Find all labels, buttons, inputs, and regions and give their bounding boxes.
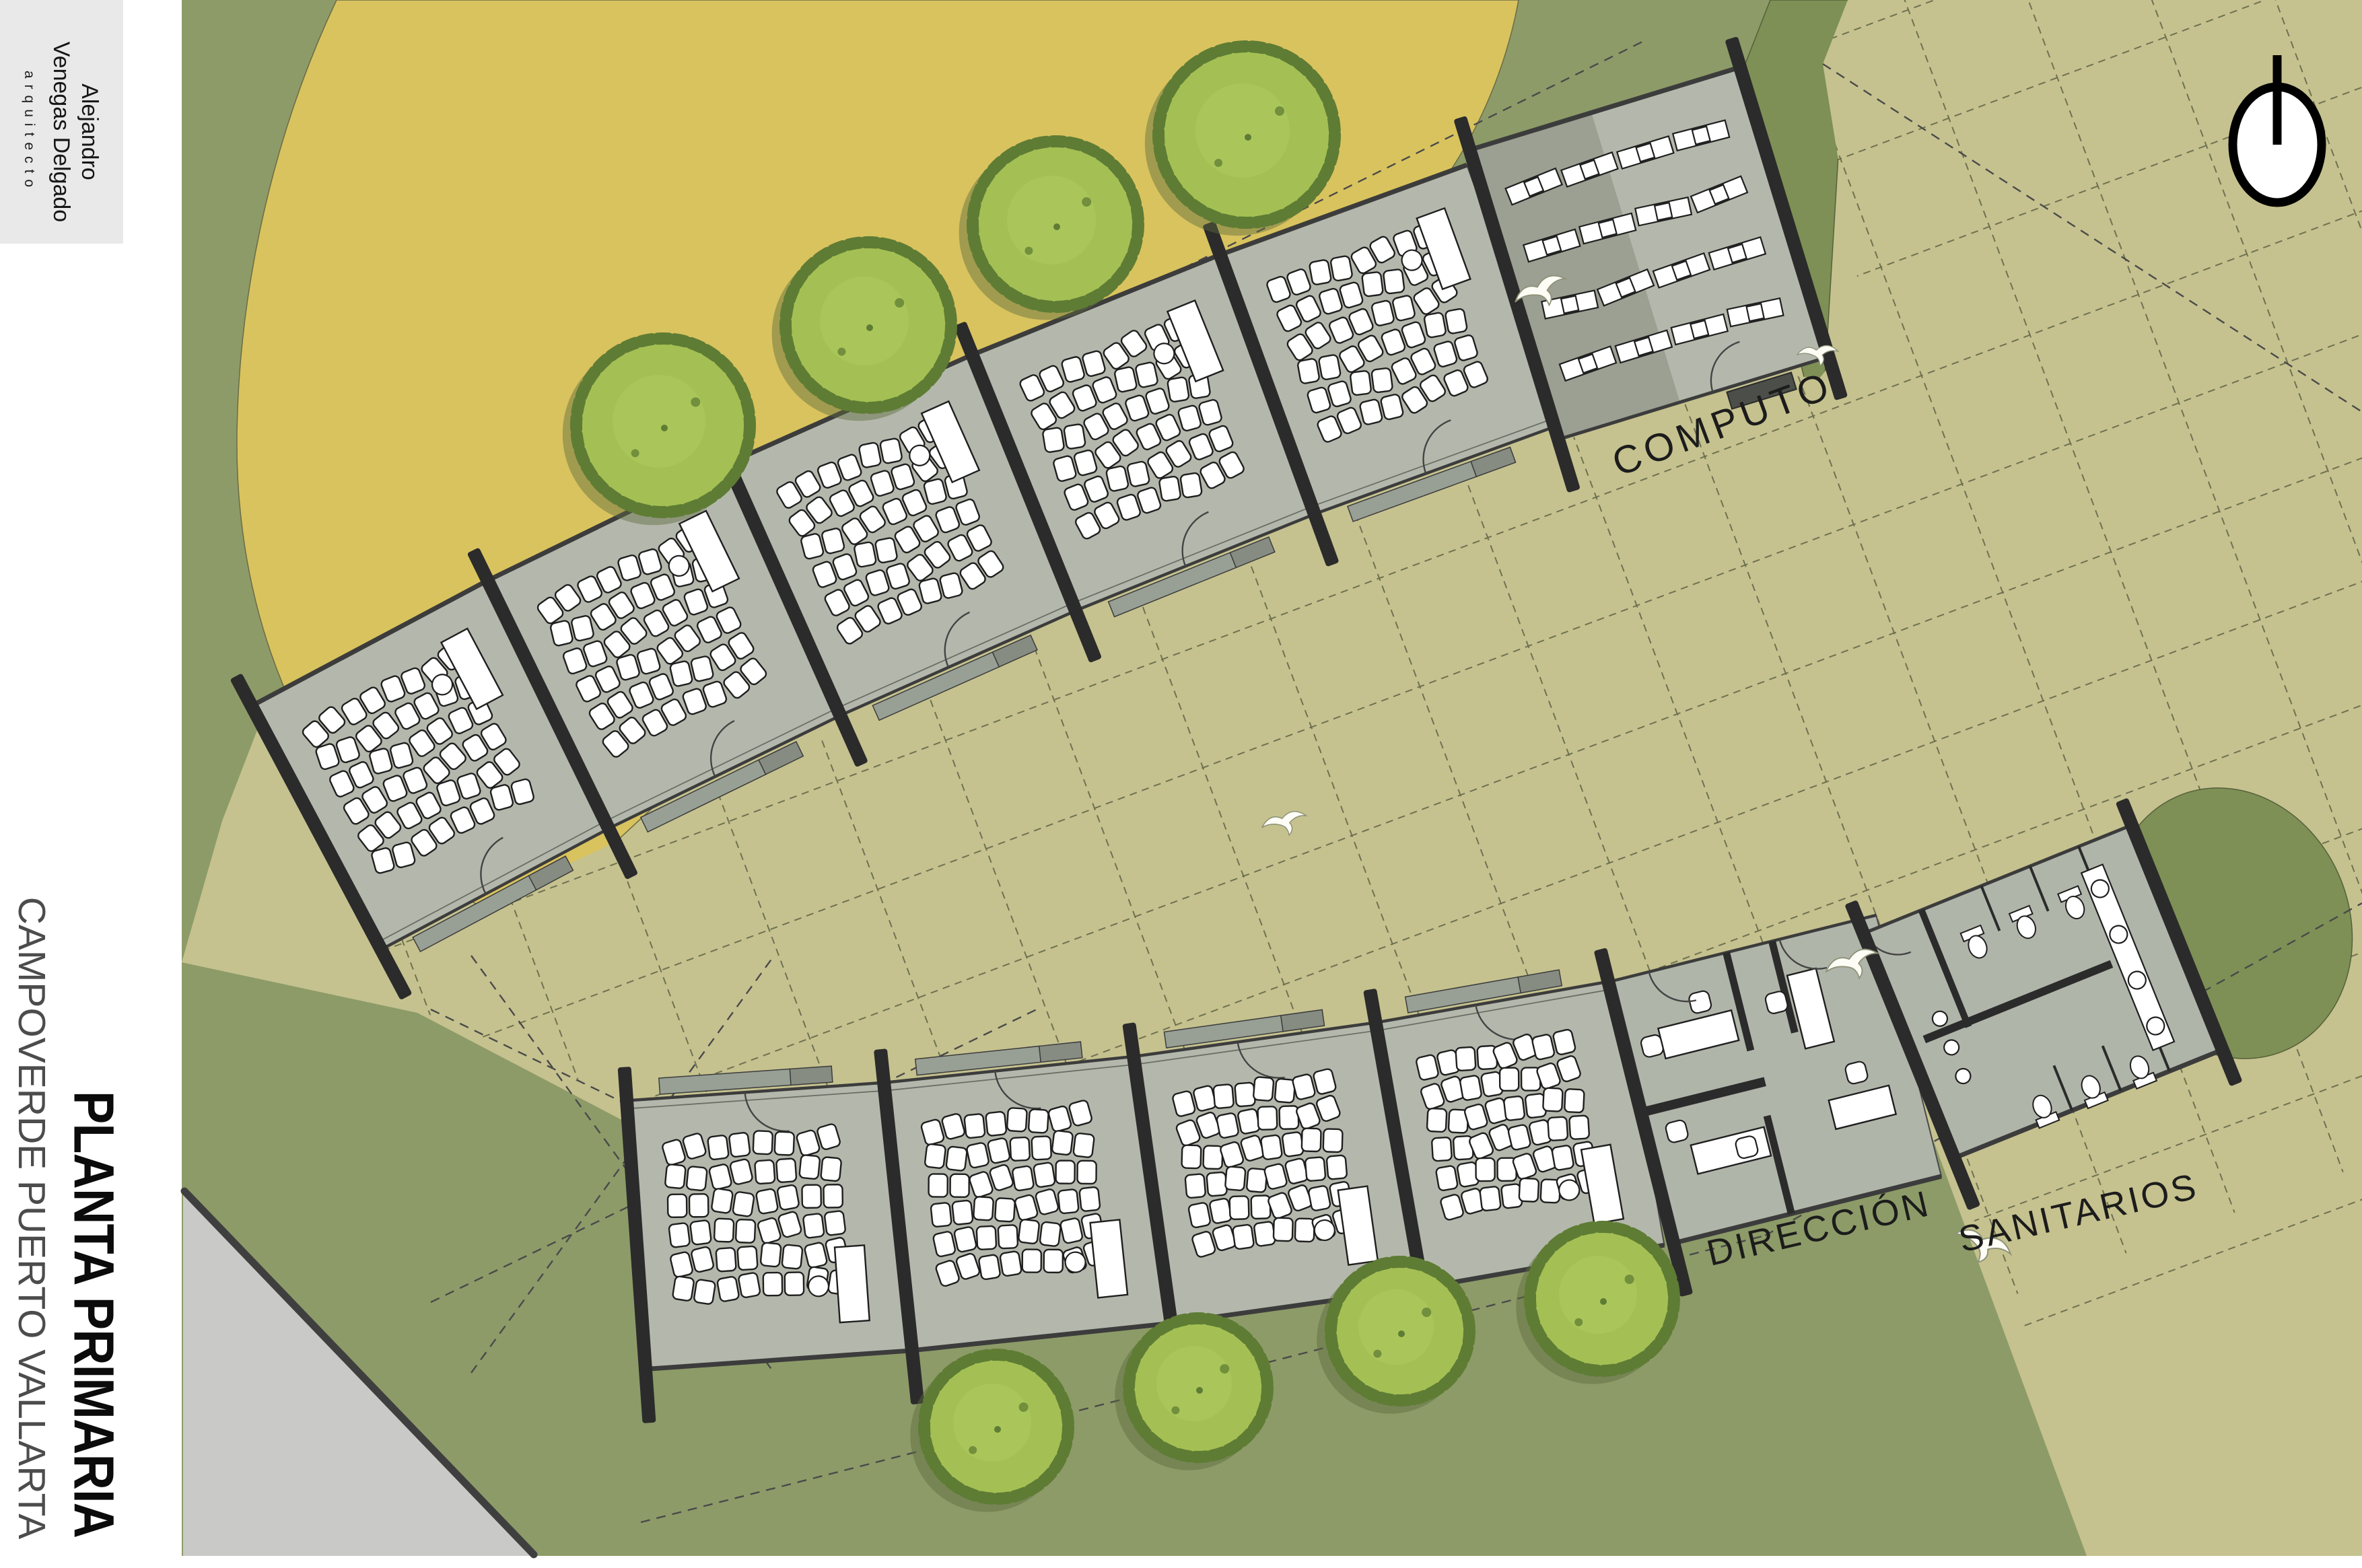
office-chair <box>1735 1135 1759 1160</box>
architect-name: Alejandro Venegas Delgado arquitecto <box>15 42 104 222</box>
office-chair <box>1844 1061 1869 1085</box>
teacher-desk <box>835 1245 870 1322</box>
office-chair <box>1665 1119 1689 1143</box>
architect-line1: Alejandro <box>75 42 104 222</box>
project-subtitle: CAMPOVERDE PUERTO VALLARTA <box>9 897 54 1540</box>
sheet: COMPUTODIRECCIÓNSANITARIOS Alejandro Ven… <box>0 0 2362 1568</box>
architect-line2: Venegas Delgado <box>47 42 75 222</box>
office-chair <box>1688 990 1712 1014</box>
office-chair <box>1764 990 1788 1014</box>
teacher-chair <box>808 1275 829 1297</box>
project-title: PLANTA PRIMARIA <box>61 1091 127 1538</box>
site-plan-canvas: COMPUTODIRECCIÓNSANITARIOS <box>0 0 2362 1568</box>
office-chair <box>1640 1034 1664 1058</box>
architect-role: arquitecto <box>15 42 43 222</box>
